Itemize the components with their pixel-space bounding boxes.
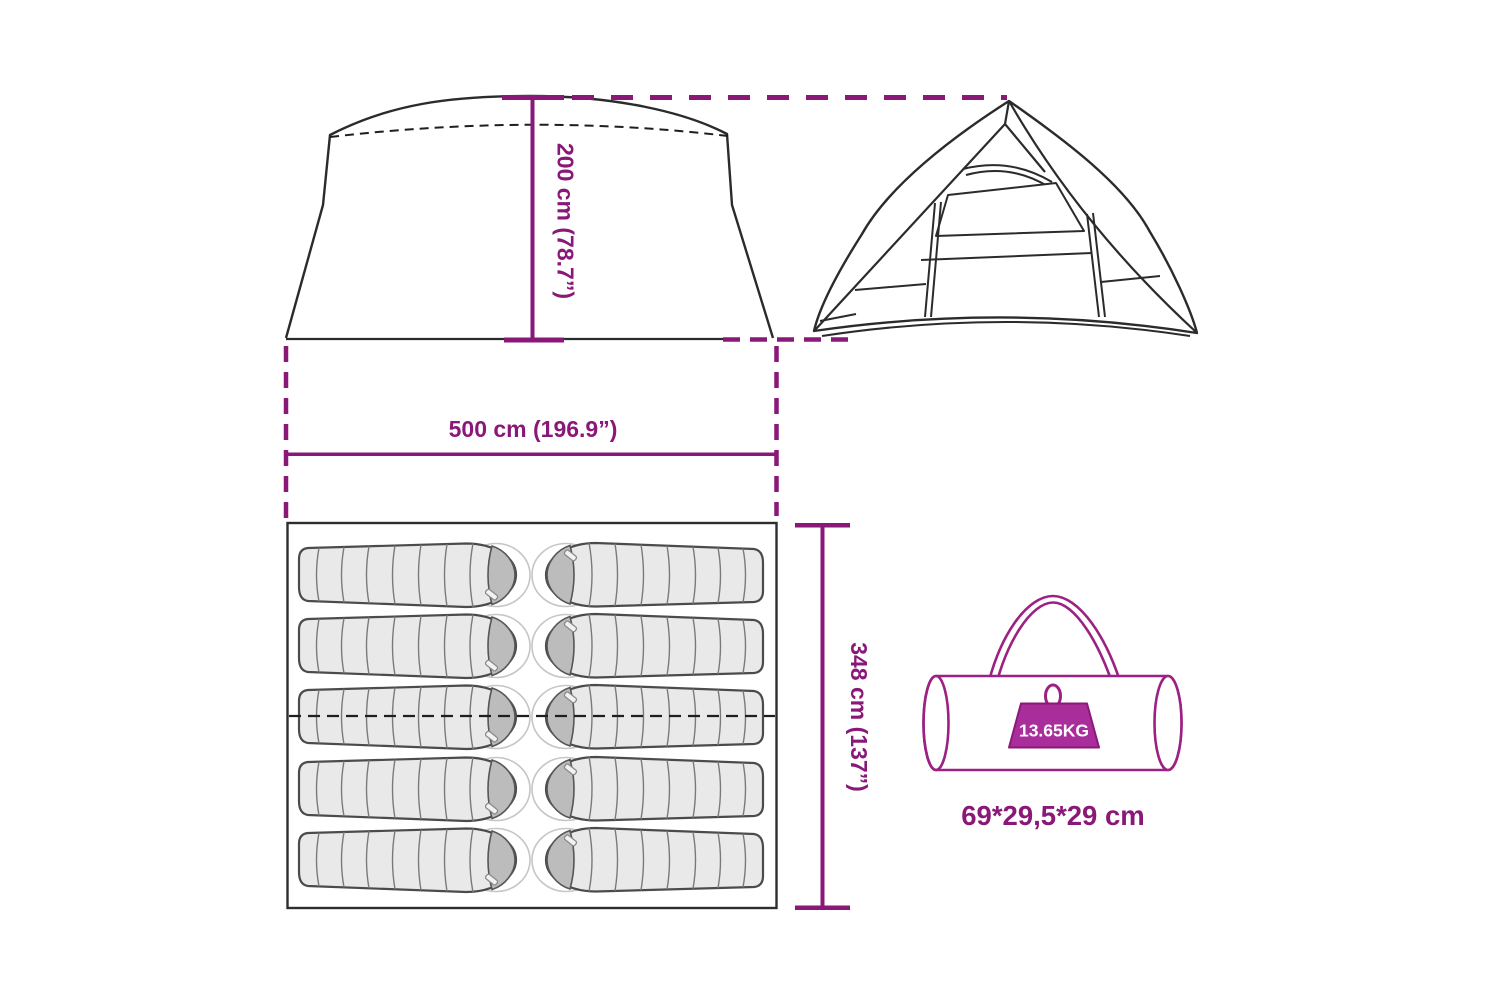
svg-text:13.65KG: 13.65KG (1019, 721, 1089, 741)
svg-text:348 cm (137”): 348 cm (137”) (846, 642, 872, 792)
svg-text:200 cm (78.7”): 200 cm (78.7”) (553, 143, 579, 299)
svg-text:69*29,5*29 cm: 69*29,5*29 cm (961, 800, 1145, 831)
svg-text:500 cm (196.9”): 500 cm (196.9”) (449, 416, 618, 442)
